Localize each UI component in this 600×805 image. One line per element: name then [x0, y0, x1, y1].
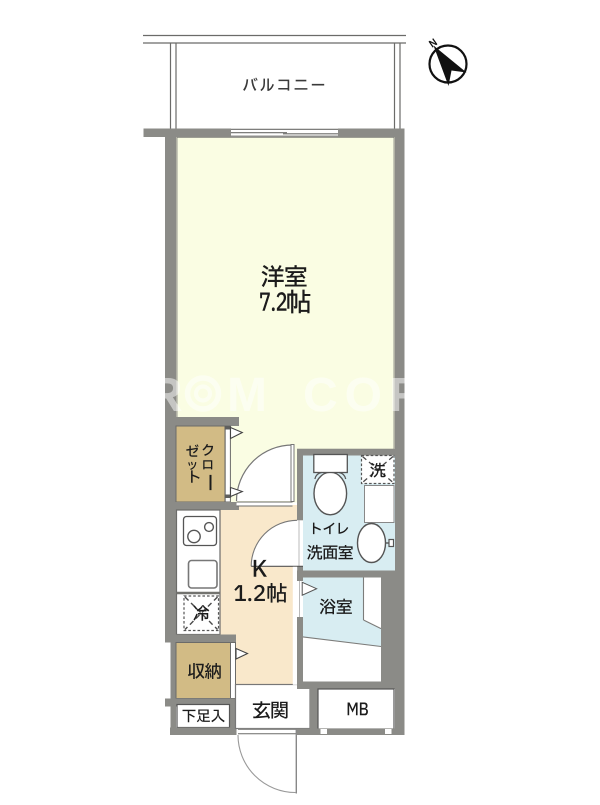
svg-text:M: M — [227, 369, 267, 422]
svg-text:R: R — [148, 369, 183, 422]
svg-text:COR: COR — [303, 369, 431, 422]
